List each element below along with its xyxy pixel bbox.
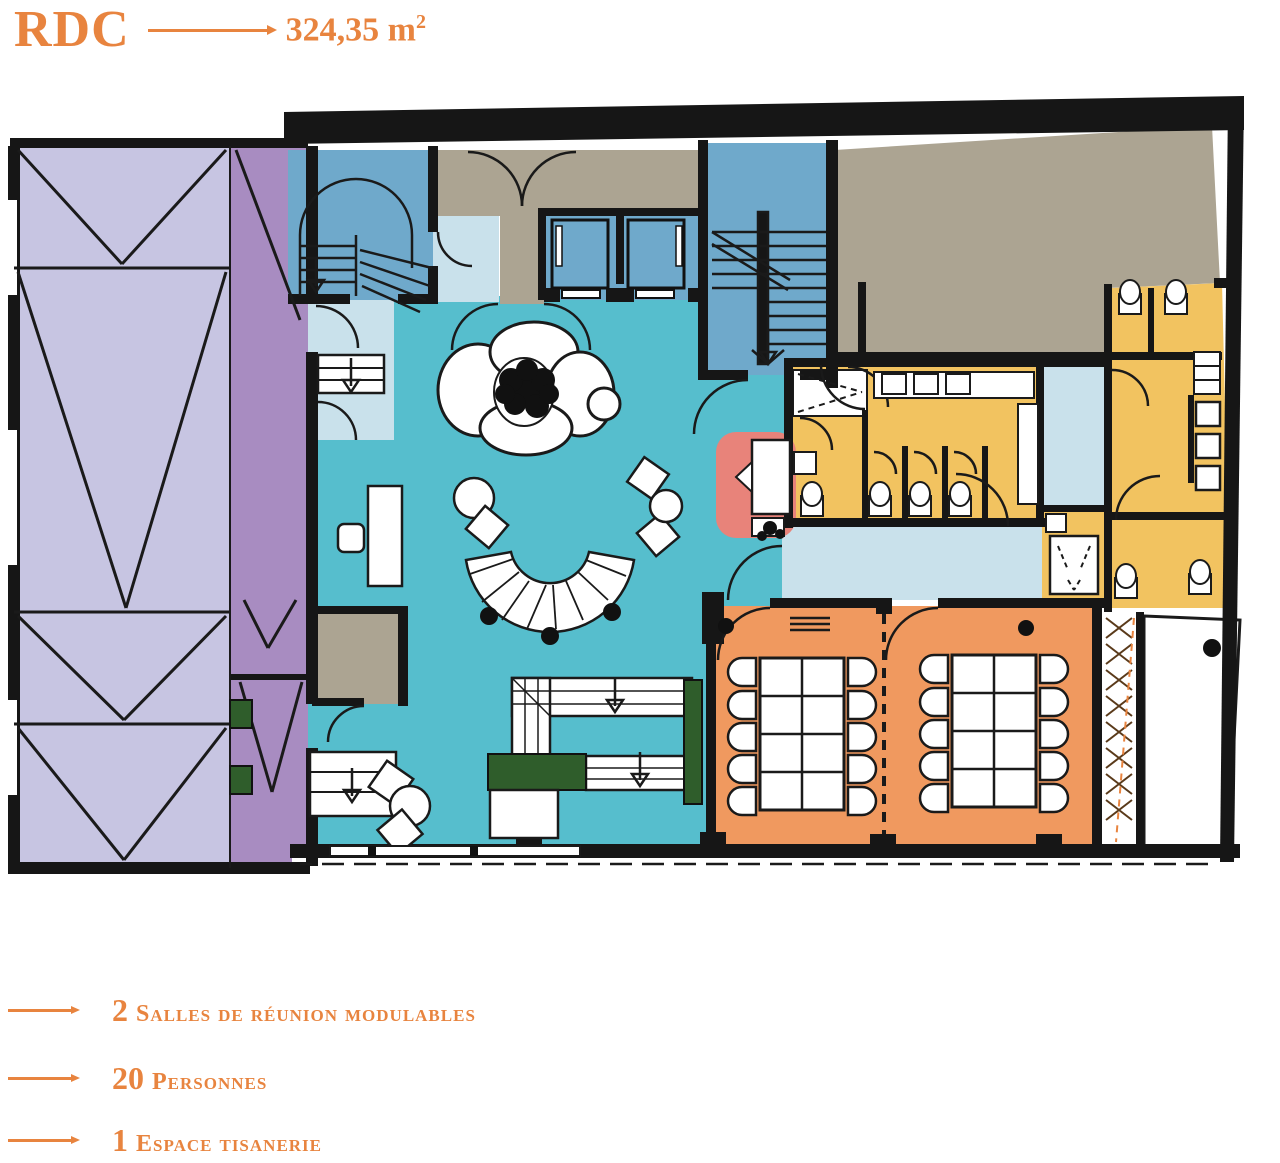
legend-label: Personnes: [152, 1069, 267, 1095]
zone-landing: [433, 216, 499, 302]
floor-plan-drawing: [0, 0, 1280, 960]
window-openings: [7, 200, 17, 795]
legend-label: Salles de réunion modulables: [136, 1001, 476, 1027]
zone-parking: [14, 146, 230, 868]
legend-arrow-icon: [8, 1077, 72, 1080]
zone-storage-room: [316, 614, 402, 704]
window-bench: [330, 846, 580, 856]
side-room-dot: [1203, 639, 1221, 657]
zone-entry-hall: [433, 150, 703, 216]
legend-arrow-icon: [8, 1009, 72, 1012]
legend-item-persons: 20Personnes: [8, 1060, 267, 1097]
legend-qty: 1: [112, 1122, 128, 1158]
legend-qty: 20: [112, 1060, 144, 1096]
legend-qty: 2: [112, 992, 128, 1028]
legend-label: Espace tisanerie: [136, 1131, 322, 1157]
legend-arrow-icon: [8, 1139, 72, 1142]
legend-item-meeting-rooms: 2Salles de réunion modulables: [8, 992, 476, 1029]
zone-entry-stem: [500, 216, 544, 304]
legend-item-tisanerie: 1Espace tisanerie: [8, 1122, 322, 1159]
floor-plan-page: RDC 324,35 m2: [0, 0, 1280, 1163]
